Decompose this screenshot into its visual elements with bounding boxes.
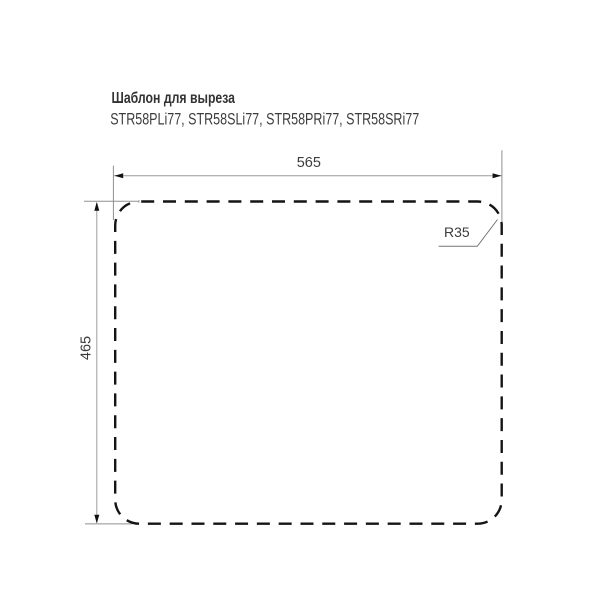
svg-text:465: 465 xyxy=(78,336,94,360)
svg-text:Шаблон для выреза: Шаблон для выреза xyxy=(112,90,236,107)
svg-text:565: 565 xyxy=(297,155,321,171)
svg-text:STR58PLi77, STR58SLi77, STR58P: STR58PLi77, STR58SLi77, STR58PRi77, STR5… xyxy=(110,110,419,128)
svg-text:R35: R35 xyxy=(444,224,470,240)
